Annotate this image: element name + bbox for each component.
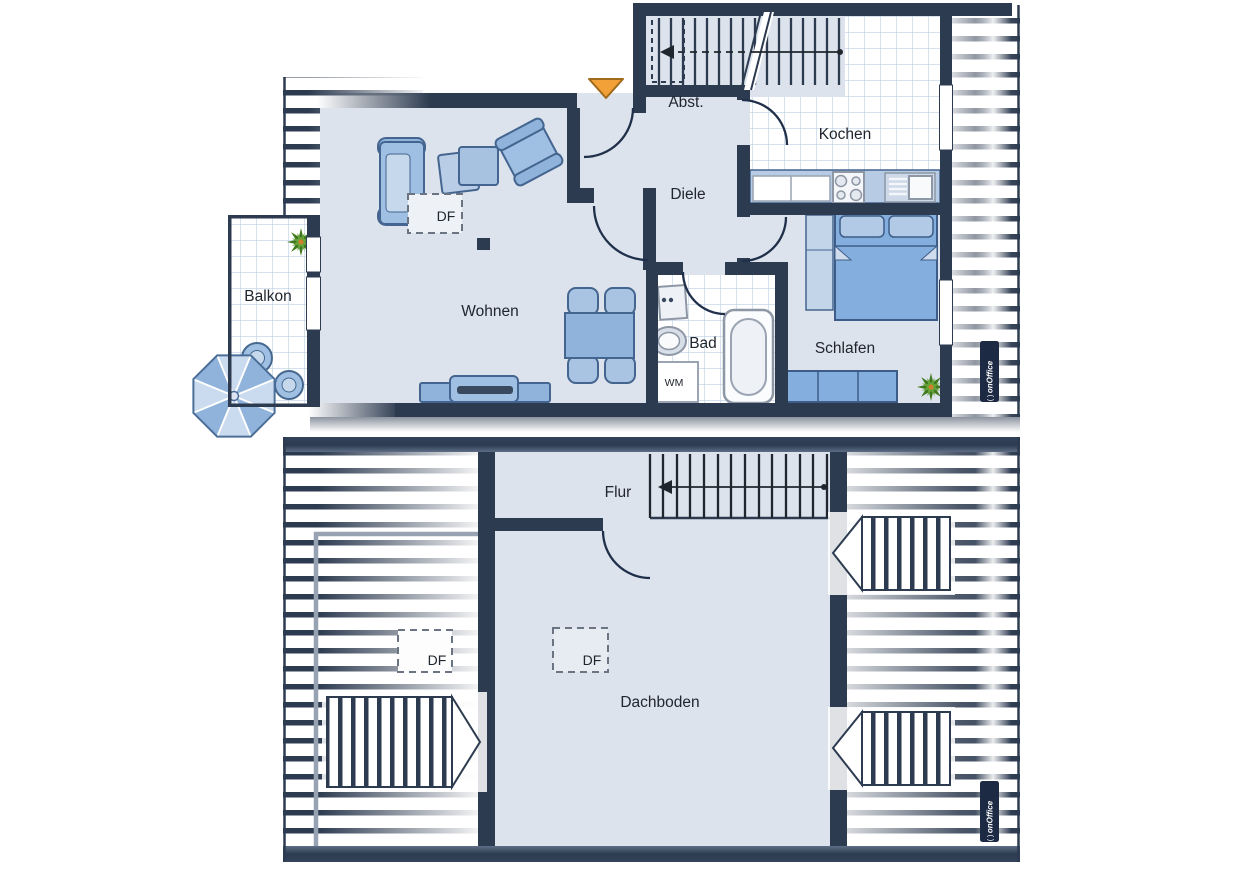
room-label-abst: Abst.	[668, 94, 703, 111]
kitchen-tiles-upper	[845, 16, 940, 97]
df-label-living: DF	[437, 208, 456, 224]
wm-label: WM	[665, 377, 684, 389]
room-label-balkon: Balkon	[244, 288, 291, 305]
brand-watermark-mark: ( )	[988, 835, 995, 842]
window-living	[307, 237, 321, 272]
df-label-roof: DF	[428, 652, 447, 668]
balcony-door	[307, 277, 321, 330]
brand-watermark-mark: ( )	[988, 395, 995, 402]
balcony-chair	[275, 371, 303, 399]
kitchen-counter	[750, 170, 940, 203]
parasol-icon	[193, 355, 274, 436]
dormer-right-upper	[828, 512, 955, 595]
room-label-dachboden: Dachboden	[620, 694, 699, 711]
stove-icon	[833, 172, 864, 203]
room-label-kochen: Kochen	[819, 126, 872, 143]
brand-watermark-text: onOffice	[986, 800, 995, 833]
dormer-right-lower	[828, 707, 955, 790]
dormer-left	[322, 692, 487, 792]
bathtub-icon	[724, 310, 773, 403]
brand-watermark-text: onOffice	[986, 360, 995, 393]
double-bed	[835, 213, 937, 320]
wardrobe	[806, 215, 833, 310]
room-label-bad: Bad	[689, 335, 717, 352]
floorplan-canvas: WM	[0, 0, 1235, 872]
room-label-diele: Diele	[670, 186, 705, 203]
attic-bottom-ridge	[283, 846, 1020, 862]
brand-watermark: onOffice ( )	[980, 341, 999, 402]
room-label-wohnen: Wohnen	[461, 303, 518, 320]
room-label-schlafen: Schlafen	[815, 340, 875, 357]
floorplan-svg: WM	[0, 0, 1235, 872]
df-label-attic: DF	[583, 652, 602, 668]
sideboard	[779, 371, 897, 402]
window-bedroom	[940, 280, 953, 345]
brand-watermark: onOffice ( )	[980, 781, 999, 842]
window-kitchen	[940, 85, 953, 150]
chimney	[477, 238, 490, 250]
sink-icon	[885, 173, 935, 202]
room-label-flur: Flur	[605, 484, 632, 501]
bathroom-sink-icon	[658, 285, 687, 320]
attic-top-ridge	[283, 437, 1020, 452]
